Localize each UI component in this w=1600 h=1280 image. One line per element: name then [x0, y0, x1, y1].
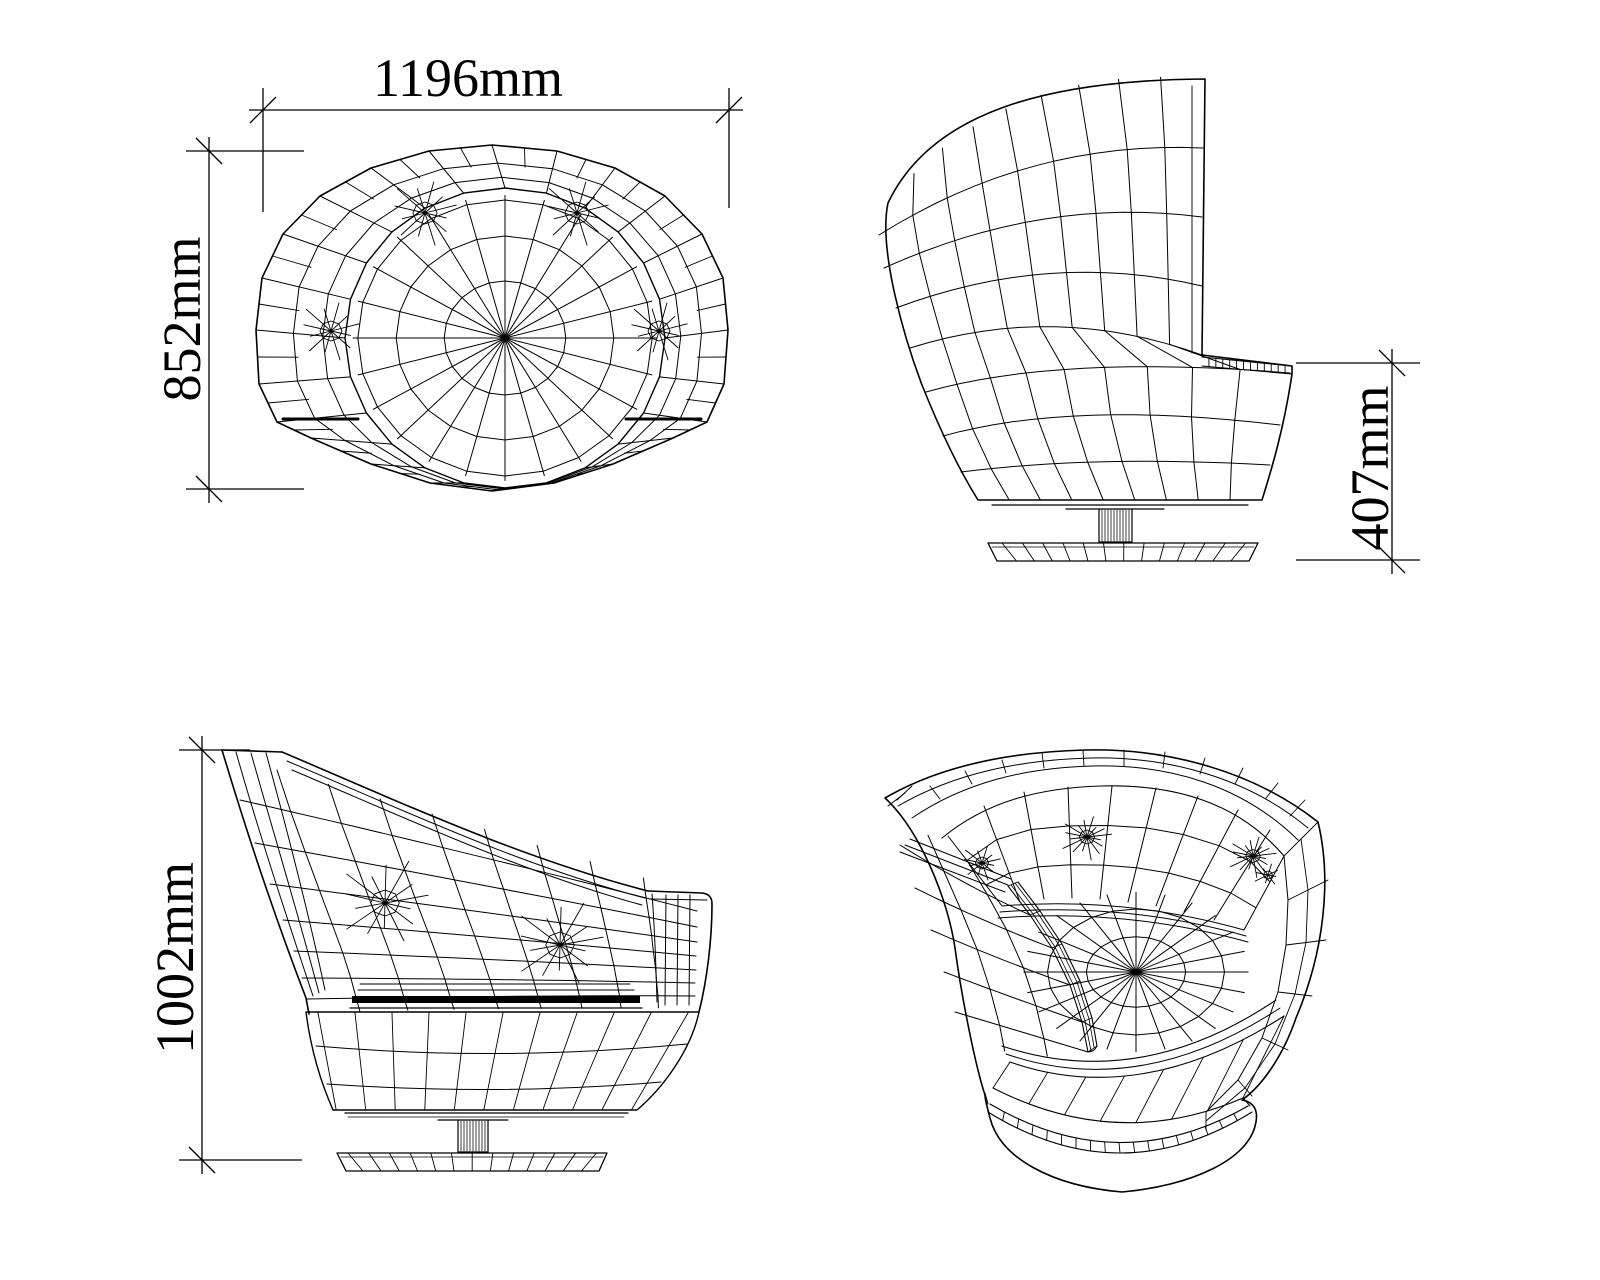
mesh-line	[1163, 752, 1165, 768]
mesh-line	[505, 338, 612, 439]
mesh-line	[623, 182, 640, 199]
mesh-line	[1136, 972, 1244, 993]
mesh-line	[259, 377, 350, 384]
mesh-line	[563, 1153, 575, 1171]
mesh-line	[320, 196, 392, 232]
mesh-line	[1177, 543, 1184, 561]
mesh-line	[965, 771, 972, 784]
mesh-line	[1161, 77, 1241, 500]
mesh-line	[372, 877, 385, 903]
mesh-line	[1002, 1000, 1276, 1061]
mesh-line	[358, 301, 505, 338]
dim-label-depth: 852mm	[152, 236, 212, 401]
mesh-line	[986, 865, 1256, 908]
mesh-line	[266, 753, 325, 990]
dim-depth: 852mm	[152, 137, 304, 503]
mesh-line	[1082, 1018, 1092, 1022]
mesh-line	[509, 1153, 514, 1171]
mesh-line	[1083, 543, 1088, 561]
mesh-line	[1003, 1112, 1005, 1121]
mesh-line	[1083, 750, 1084, 766]
mesh-line	[660, 278, 723, 299]
mesh-line	[650, 899, 707, 900]
mesh-line	[900, 852, 1005, 892]
mesh-line	[1136, 1070, 1164, 1123]
mesh-line	[1068, 787, 1072, 898]
mesh-line	[1206, 839, 1308, 1121]
mesh-line	[371, 168, 425, 208]
mesh-line	[505, 267, 637, 338]
mesh-line	[369, 1153, 381, 1171]
mesh-line	[368, 903, 385, 933]
mesh-line	[505, 338, 652, 375]
mesh-line	[1100, 786, 1112, 899]
mesh-line	[1290, 800, 1305, 816]
mesh-line	[1162, 1139, 1164, 1149]
mesh-line	[1219, 1121, 1222, 1129]
chair-outline	[886, 79, 1292, 500]
mesh-line	[660, 377, 724, 384]
mesh-line	[373, 267, 505, 338]
mesh-line	[665, 330, 728, 338]
mesh-line	[355, 1013, 366, 1109]
mesh-line	[454, 1013, 466, 1109]
mesh-line	[525, 148, 526, 167]
mesh-line	[898, 758, 1308, 828]
mesh-line	[1142, 543, 1145, 561]
mesh-line	[429, 215, 505, 338]
mesh-line	[1231, 543, 1246, 561]
chair-outline	[222, 750, 309, 1014]
dim-overall-height: 1002mm	[145, 736, 302, 1174]
mesh-line	[1032, 1125, 1033, 1135]
mesh-line	[685, 256, 712, 267]
mesh-line	[505, 301, 652, 338]
mesh-line	[961, 461, 1270, 472]
mesh-line	[879, 147, 1203, 235]
mesh-line	[327, 1082, 661, 1090]
view-side-facing-left	[879, 77, 1292, 561]
dim-label-seat-height: 407mm	[1340, 385, 1400, 550]
mesh-line	[466, 200, 505, 338]
mesh-line	[452, 1153, 454, 1171]
mesh-line	[505, 237, 612, 338]
mesh-line	[581, 1153, 596, 1171]
mesh-line	[884, 212, 1202, 268]
mesh-line	[1107, 972, 1136, 1049]
mesh-line	[1024, 792, 1044, 899]
mesh-line	[1213, 543, 1225, 561]
mesh-line	[1063, 543, 1070, 561]
mesh-line	[910, 327, 1202, 355]
mesh-line	[373, 338, 505, 409]
mesh-line	[910, 839, 1011, 879]
mesh-line	[1234, 1114, 1238, 1121]
mesh-line	[1244, 856, 1284, 930]
mesh-line	[385, 903, 404, 941]
mesh-line	[302, 978, 695, 983]
mesh-line	[1191, 1131, 1194, 1140]
dim-label-width: 1196mm	[373, 48, 563, 108]
mesh-line	[1010, 1016, 1284, 1077]
mesh-line	[398, 237, 505, 338]
mesh-line	[1205, 1127, 1208, 1135]
mesh-line	[410, 1153, 417, 1171]
mesh-line	[1136, 972, 1165, 1049]
mesh-line	[273, 256, 312, 267]
mesh-line	[389, 1153, 399, 1171]
mesh-line	[602, 1013, 651, 1109]
mesh-line	[1064, 1077, 1085, 1115]
mesh-line	[942, 148, 1040, 500]
mesh-line	[1041, 95, 1135, 500]
mesh-line	[913, 174, 1009, 500]
chair-outline	[282, 752, 648, 891]
mesh-line	[358, 338, 505, 375]
mesh-line	[1043, 543, 1053, 561]
view-perspective	[885, 750, 1328, 1192]
mesh-line	[577, 160, 586, 178]
mesh-line	[505, 338, 581, 461]
mesh-line	[348, 1153, 363, 1171]
mesh-line	[1128, 788, 1156, 902]
mesh-line	[505, 338, 544, 476]
mesh-line	[1206, 856, 1288, 1112]
mesh-line	[1195, 543, 1205, 561]
dim-label-overall-height: 1002mm	[145, 862, 205, 1054]
mesh-line	[665, 895, 666, 1005]
mesh-line	[1176, 1136, 1178, 1145]
mesh-line	[1047, 1130, 1048, 1140]
mesh-line	[1133, 1142, 1134, 1152]
dim-width: 1196mm	[249, 48, 743, 212]
mesh-line	[1119, 1143, 1120, 1154]
mesh-line	[1214, 830, 1270, 920]
mesh-line	[505, 215, 581, 338]
mesh-line	[1002, 760, 1006, 773]
mesh-line	[573, 1013, 614, 1109]
mesh-line	[461, 148, 472, 167]
mesh-line	[466, 338, 505, 476]
mesh-line	[896, 272, 1202, 308]
mesh-line	[505, 200, 544, 338]
mesh-line	[398, 338, 505, 439]
mesh-line	[527, 1153, 534, 1171]
body-bottom-rim	[993, 1088, 1243, 1123]
mesh-line	[1002, 543, 1017, 561]
mesh-line	[268, 399, 309, 403]
base-ring-bottom	[988, 1112, 1252, 1153]
mesh-line	[346, 182, 374, 199]
mesh-line	[955, 1012, 1088, 1052]
mesh-line	[236, 752, 313, 996]
mesh-line	[660, 215, 684, 230]
mesh-line	[926, 367, 1290, 392]
mesh-line	[967, 826, 1270, 882]
mesh-line	[400, 160, 420, 178]
mesh-line	[259, 304, 299, 311]
mesh-line	[1105, 1142, 1106, 1153]
mesh-line	[294, 951, 696, 970]
mesh-line	[1148, 1141, 1150, 1151]
mesh-line	[505, 338, 637, 409]
mesh-line	[492, 145, 505, 188]
mesh-line	[697, 304, 725, 311]
mesh-line	[689, 895, 690, 1005]
mesh-line	[1104, 543, 1106, 561]
mesh-line	[546, 151, 557, 193]
mesh-line	[1184, 810, 1238, 912]
mesh-line	[687, 399, 716, 403]
mesh-line	[392, 1013, 395, 1109]
mesh-line	[1119, 79, 1199, 500]
base-ring-top	[990, 1104, 1248, 1143]
mesh-line	[677, 895, 678, 1005]
mesh-line	[1042, 753, 1044, 768]
mesh-line	[543, 945, 560, 975]
mesh-line	[240, 800, 697, 911]
mesh-line	[984, 806, 1020, 902]
view-top-plan	[256, 145, 728, 491]
dim-seat-height: 407mm	[1296, 349, 1420, 574]
mesh-line	[545, 1153, 555, 1171]
mesh-line	[283, 920, 696, 956]
mesh-line	[484, 1013, 503, 1109]
mesh-line	[618, 196, 665, 232]
mesh-line	[632, 1013, 688, 1109]
drawing-sheet: 1196mm 852mm 407mm 1002mm	[0, 0, 1600, 1280]
mesh-line	[431, 1153, 436, 1171]
mesh-line	[1159, 543, 1164, 561]
mesh-line	[1028, 951, 1136, 972]
mesh-line	[1017, 1119, 1018, 1128]
mesh-line	[385, 865, 386, 903]
mesh-line	[1006, 1008, 1280, 1069]
mesh-line	[1022, 543, 1034, 561]
mesh-line	[1136, 895, 1165, 972]
mesh-line	[973, 127, 1072, 500]
mesh-line	[294, 429, 332, 430]
mesh-line	[993, 1062, 1010, 1088]
mesh-line	[560, 907, 561, 945]
mesh-line	[1029, 1072, 1048, 1104]
mesh-line	[543, 1013, 577, 1109]
mesh-line	[900, 845, 1030, 915]
view-side-facing-right	[222, 750, 712, 1171]
chair-outline	[885, 750, 1325, 1192]
mesh-line	[663, 429, 690, 430]
mesh-line	[302, 215, 337, 230]
mesh-line	[514, 1013, 540, 1109]
mesh-line	[429, 338, 505, 461]
mesh-line	[270, 884, 697, 942]
mesh-line	[490, 1153, 493, 1171]
dimension-annotations: 1196mm 852mm 407mm 1002mm	[145, 48, 1420, 1174]
mesh-line	[1136, 951, 1244, 972]
mesh-line	[262, 278, 350, 299]
mesh-line	[590, 862, 621, 1008]
mesh-line	[425, 1013, 429, 1109]
mesh-line	[1100, 1076, 1124, 1121]
cad-drawing: 1196mm 852mm 407mm 1002mm	[0, 0, 1600, 1280]
mesh-line	[1200, 758, 1205, 774]
mesh-line	[948, 836, 1002, 906]
mesh-line	[1156, 796, 1198, 906]
mesh-line	[1079, 85, 1167, 500]
